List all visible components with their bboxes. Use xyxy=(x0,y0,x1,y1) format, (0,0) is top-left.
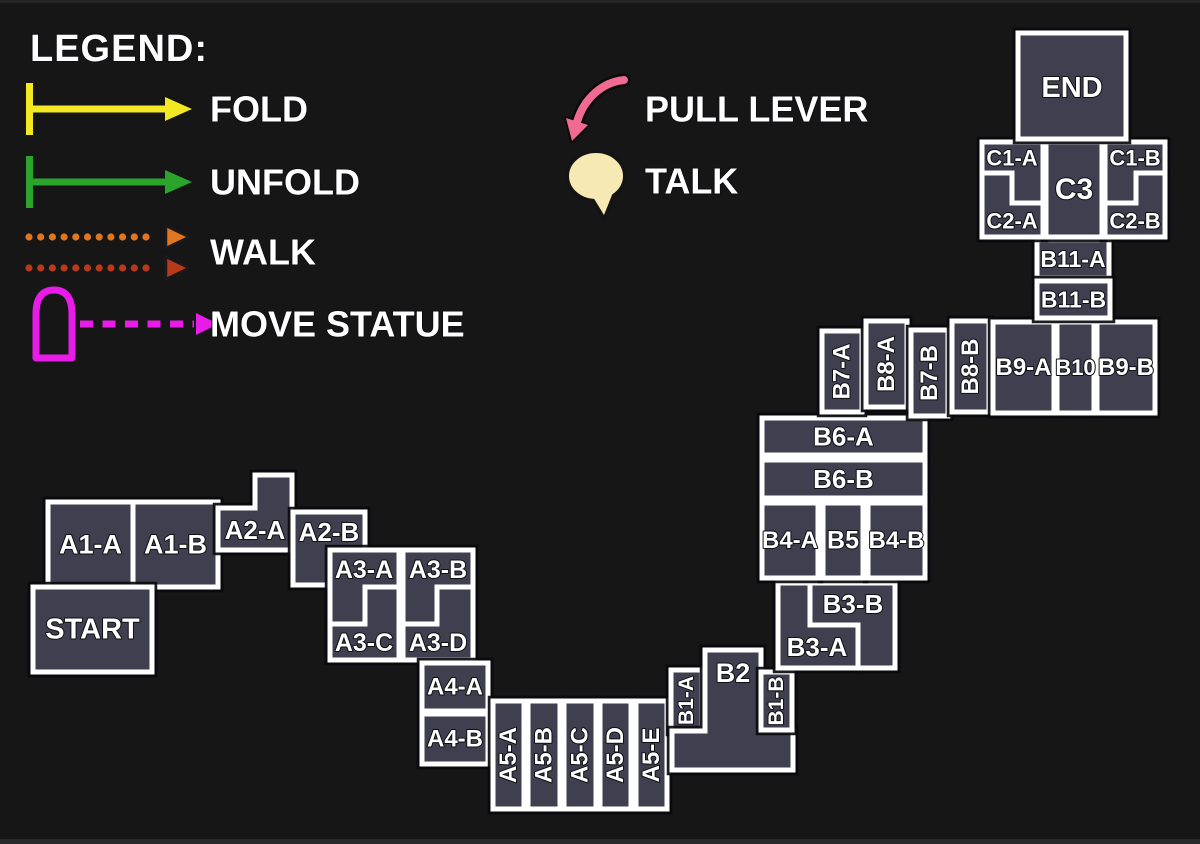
bottom-edge-strip xyxy=(0,839,1200,844)
pink-curved-arrow-icon xyxy=(566,80,624,141)
room-b10-label: B10 xyxy=(1055,355,1095,380)
room-b7-b-label: B7-B xyxy=(916,345,943,401)
room-b3-a-label: B3-A xyxy=(787,632,848,662)
room-a4-a-label: A4-A xyxy=(427,674,483,701)
room-b6-a-label: B6-A xyxy=(813,422,874,452)
room-b2-label: B2 xyxy=(716,658,751,688)
room-b4-b-label: B4-B xyxy=(868,527,924,554)
double-dotted-arrow-icon xyxy=(25,226,189,279)
room-b4-a-label: B4-A xyxy=(762,527,818,554)
room-a2-a-label: A2-A xyxy=(225,515,286,545)
room-a3-d-label: A3-D xyxy=(409,629,467,657)
room-b6-b-label: B6-B xyxy=(813,464,874,494)
legend-title: LEGEND: xyxy=(30,28,208,70)
legend-item-fold: FOLD xyxy=(26,83,308,135)
legend-item-walk: WALK xyxy=(25,226,316,279)
walkthrough-map-page: A1-AA1-BSTARTA2-AA2-BA3-AA3-BA3-CA3-DA4-… xyxy=(0,0,1200,844)
green-bar-arrow-icon xyxy=(26,156,192,208)
room-b11-a-label: B11-A xyxy=(1040,246,1105,272)
room-b8-a-label: B8-A xyxy=(873,336,900,392)
legend-item-unfold-label: UNFOLD xyxy=(210,162,360,203)
legend-item-talk-label: TALK xyxy=(645,161,738,202)
room-a5-c-label: A5-C xyxy=(567,727,594,783)
room-b7-a-label: B7-A xyxy=(829,343,856,399)
legend: LEGEND: xyxy=(30,28,208,70)
room-b8-b-label: B8-B xyxy=(957,338,984,394)
room-a2-b-label: A2-B xyxy=(299,517,360,547)
room-c1-b-label: C1-B xyxy=(1109,146,1160,171)
room-b1-b-label: B1-B xyxy=(765,676,788,725)
room-c2-a-label: C2-A xyxy=(986,209,1037,234)
room-b9-a-label: B9-A xyxy=(995,354,1051,381)
legend-item-unfold: UNFOLD xyxy=(26,156,360,208)
legend-item-talk: TALK xyxy=(567,151,738,219)
yellow-bar-arrow-icon xyxy=(26,83,192,135)
top-edge-strip xyxy=(0,0,1200,3)
room-a3-c-label: A3-C xyxy=(335,629,393,657)
legend-item-pull-lever-label: PULL LEVER xyxy=(645,89,868,130)
room-a4-b-label: A4-B xyxy=(427,726,483,753)
room-b3-b-label: B3-B xyxy=(823,589,884,619)
statue-dashed-arrow-icon xyxy=(36,290,218,358)
room-c2-b-label: C2-B xyxy=(1109,209,1160,234)
level-map-canvas: A1-AA1-BSTARTA2-AA2-BA3-AA3-BA3-CA3-DA4-… xyxy=(0,0,1200,844)
room-start-label: START xyxy=(45,614,140,646)
room-c3-label: C3 xyxy=(1055,173,1093,206)
room-b9-b-label: B9-B xyxy=(1098,354,1154,381)
legend-item-walk-label: WALK xyxy=(210,232,316,273)
legend-item-fold-label: FOLD xyxy=(210,89,308,130)
room-a5-e-label: A5-E xyxy=(638,728,665,783)
legend-item-pull-lever: PULL LEVER xyxy=(566,80,868,141)
room-a5-a-label: A5-A xyxy=(495,727,522,783)
room-a1-a-label: A1-A xyxy=(59,530,122,560)
legend-item-move-statue: MOVE STATUE xyxy=(36,290,465,358)
speech-bubble-icon xyxy=(567,151,625,219)
room-a5-b-label: A5-B xyxy=(531,727,558,783)
room-a3-a-label: A3-A xyxy=(335,556,393,584)
room-a1-b-label: A1-B xyxy=(144,530,207,560)
room-end-label: END xyxy=(1041,72,1102,104)
room-b1-a-label: B1-A xyxy=(675,676,698,725)
room-b11-b-label: B11-B xyxy=(1041,287,1106,313)
legend-item-move-statue-label: MOVE STATUE xyxy=(210,304,465,345)
room-a5-d-label: A5-D xyxy=(602,727,629,783)
room-c1-a-label: C1-A xyxy=(986,146,1037,171)
room-a3-b-label: A3-B xyxy=(409,556,467,584)
room-b5-label: B5 xyxy=(827,527,859,555)
